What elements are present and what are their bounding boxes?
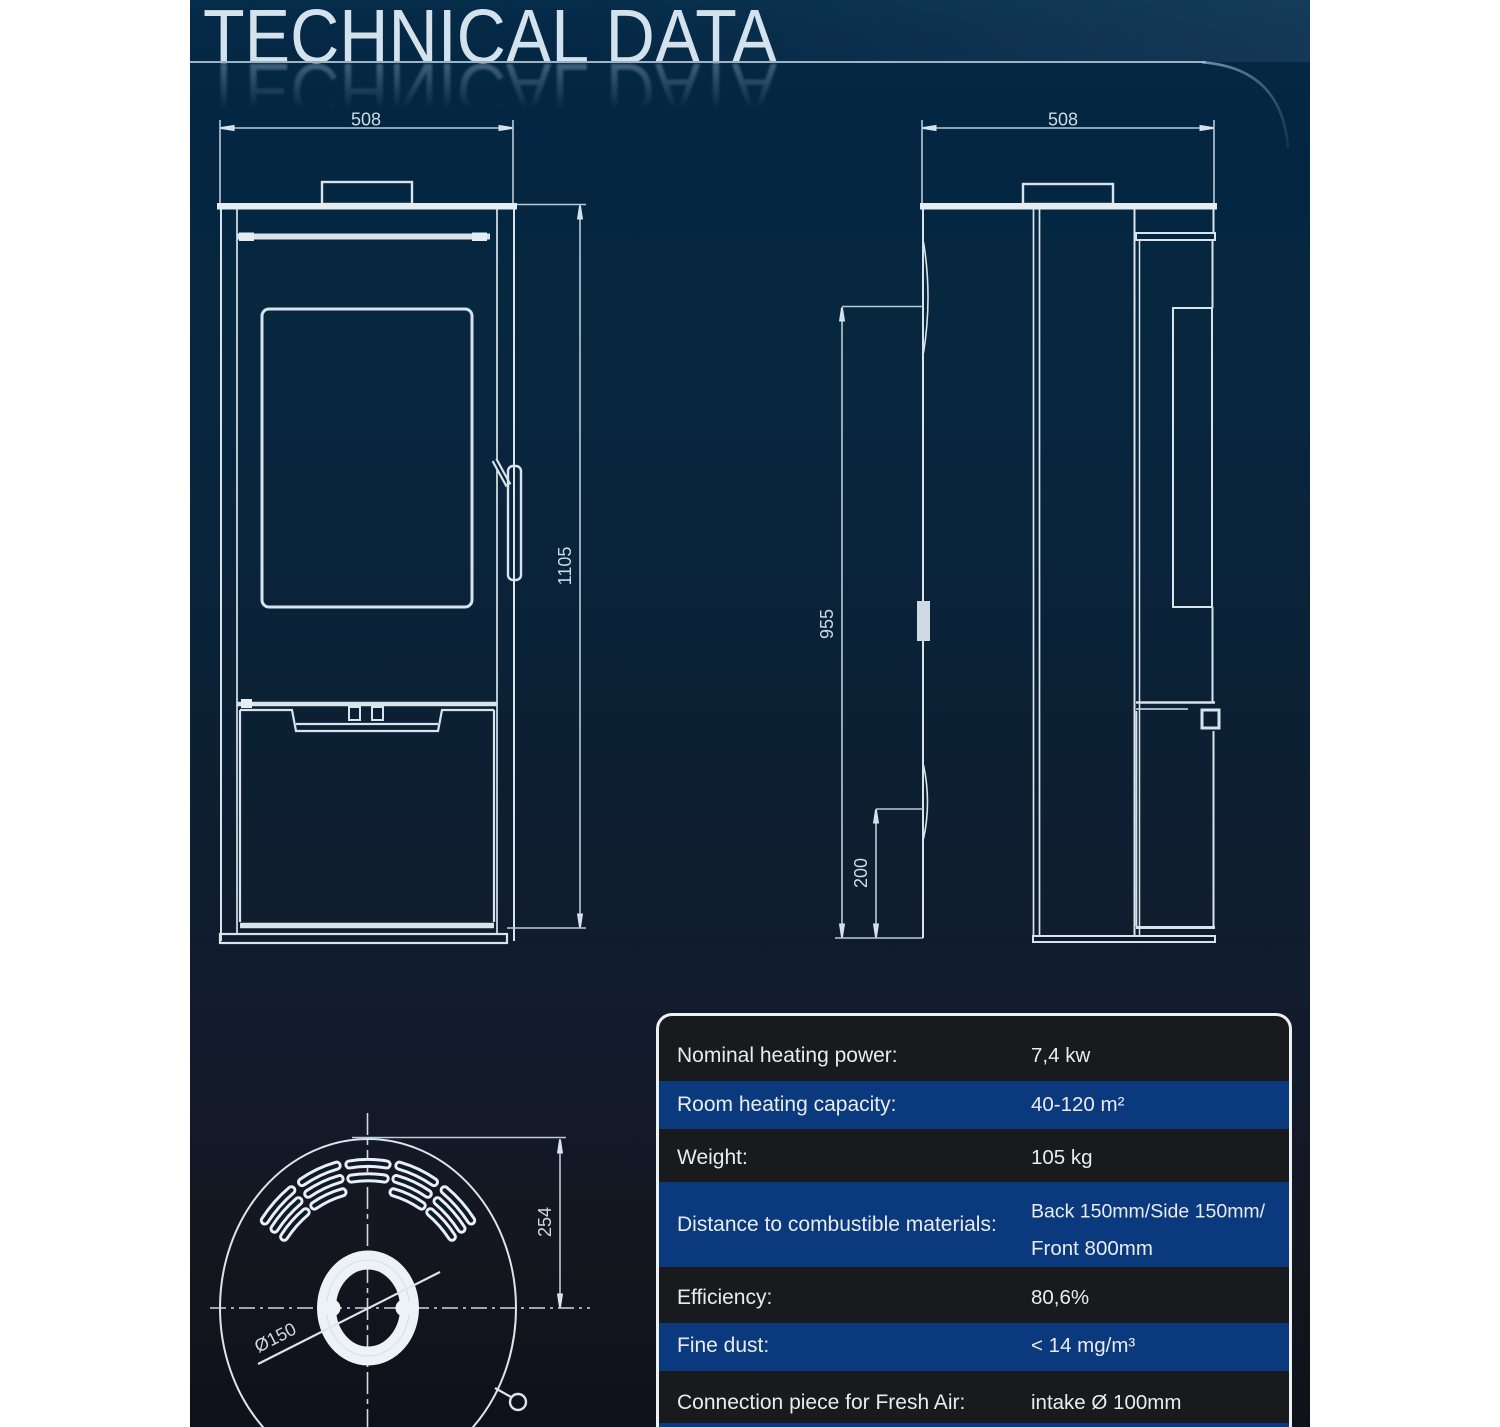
- svg-text:508: 508: [1048, 110, 1078, 130]
- svg-text:508: 508: [351, 110, 381, 130]
- svg-text:200: 200: [851, 858, 871, 888]
- svg-text:Ø150: Ø150: [251, 1319, 299, 1357]
- svg-text:1105: 1105: [555, 547, 575, 586]
- svg-text:254: 254: [535, 1207, 555, 1237]
- svg-text:955: 955: [817, 609, 837, 639]
